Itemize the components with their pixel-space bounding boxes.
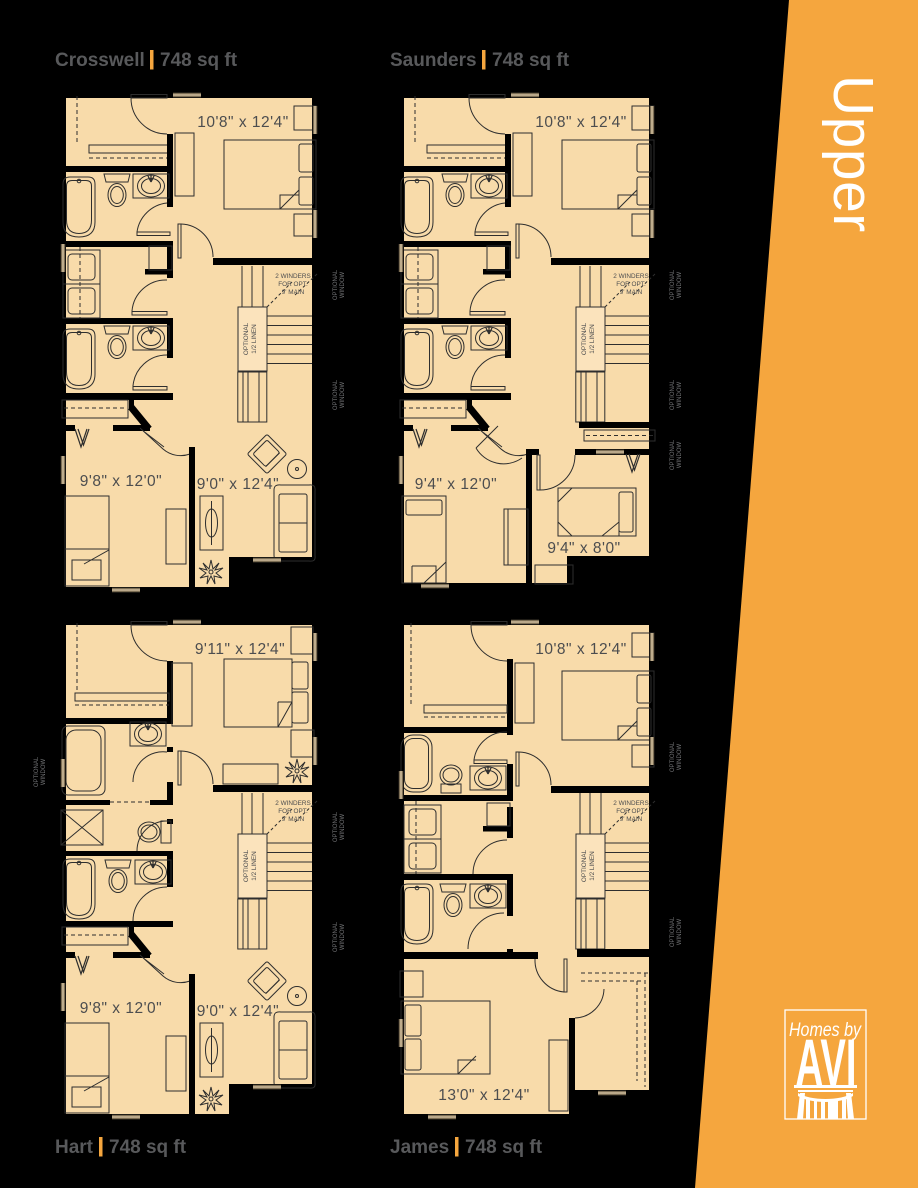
svg-text:13'0" x 12'4": 13'0" x 12'4" bbox=[438, 1087, 530, 1104]
svg-text:WINDOW: WINDOW bbox=[677, 744, 683, 771]
svg-text:748 sq ft: 748 sq ft bbox=[109, 1137, 187, 1158]
svg-text:WINDOW: WINDOW bbox=[677, 382, 683, 409]
svg-text:Crosswell: Crosswell bbox=[55, 50, 145, 71]
svg-text:9'4" x 12'0": 9'4" x 12'0" bbox=[415, 476, 497, 493]
svg-text:OPTIONAL: OPTIONAL bbox=[333, 269, 339, 300]
svg-text:OPTIONAL: OPTIONAL bbox=[670, 379, 676, 410]
svg-text:Hart: Hart bbox=[55, 1137, 94, 1158]
svg-text:748 sq ft: 748 sq ft bbox=[160, 50, 238, 71]
svg-text:WINDOW: WINDOW bbox=[340, 924, 346, 951]
svg-text:10'8" x 12'4": 10'8" x 12'4" bbox=[197, 114, 289, 131]
svg-text:Upper: Upper bbox=[821, 75, 885, 233]
svg-text:9'4" x 8'0": 9'4" x 8'0" bbox=[547, 540, 620, 557]
svg-text:OPTIONAL: OPTIONAL bbox=[670, 269, 676, 300]
svg-text:OPTIONAL: OPTIONAL bbox=[333, 811, 339, 842]
svg-text:WINDOW: WINDOW bbox=[677, 919, 683, 946]
svg-text:OPTIONAL: OPTIONAL bbox=[34, 756, 40, 787]
svg-text:10'8" x 12'4": 10'8" x 12'4" bbox=[535, 114, 627, 131]
svg-text:OPTIONAL: OPTIONAL bbox=[333, 379, 339, 410]
svg-text:9'0" x 12'4": 9'0" x 12'4" bbox=[197, 1003, 279, 1020]
svg-text:WINDOW: WINDOW bbox=[677, 442, 683, 469]
svg-text:OPTIONAL: OPTIONAL bbox=[670, 741, 676, 772]
svg-text:9'8" x 12'0": 9'8" x 12'0" bbox=[80, 473, 162, 490]
svg-text:748 sq ft: 748 sq ft bbox=[465, 1137, 543, 1158]
svg-text:748 sq ft: 748 sq ft bbox=[492, 50, 570, 71]
svg-text:OPTIONAL: OPTIONAL bbox=[670, 916, 676, 947]
svg-text:WINDOW: WINDOW bbox=[340, 382, 346, 409]
svg-text:WINDOW: WINDOW bbox=[340, 272, 346, 299]
svg-text:9'11" x 12'4": 9'11" x 12'4" bbox=[195, 641, 285, 658]
svg-text:OPTIONAL: OPTIONAL bbox=[670, 439, 676, 470]
svg-text:James: James bbox=[390, 1137, 449, 1158]
svg-text:WINDOW: WINDOW bbox=[340, 814, 346, 841]
svg-text:WINDOW: WINDOW bbox=[677, 272, 683, 299]
svg-text:9'8" x 12'0": 9'8" x 12'0" bbox=[80, 1000, 162, 1017]
svg-text:10'8" x 12'4": 10'8" x 12'4" bbox=[535, 641, 627, 658]
svg-text:9'0" x 12'4": 9'0" x 12'4" bbox=[197, 476, 279, 493]
svg-text:OPTIONAL: OPTIONAL bbox=[333, 921, 339, 952]
svg-text:WINDOW: WINDOW bbox=[41, 759, 47, 786]
svg-text:Saunders: Saunders bbox=[390, 50, 477, 71]
